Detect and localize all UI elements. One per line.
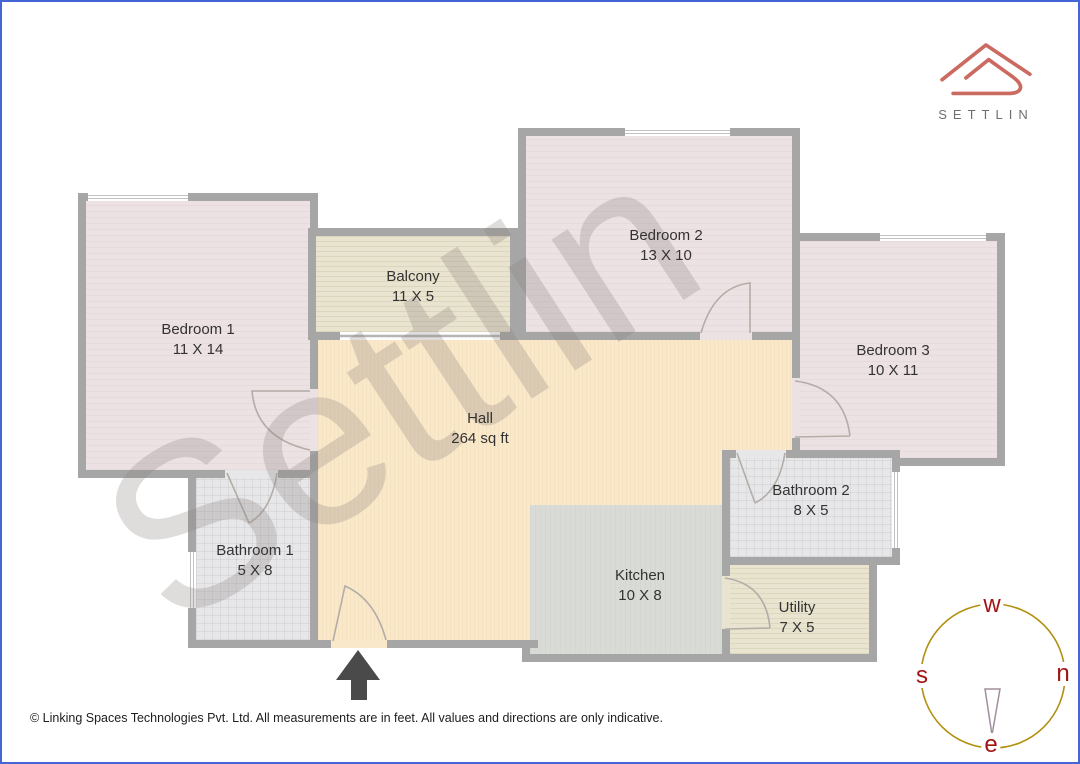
door-arc-bedroom-3 (795, 381, 850, 437)
label-bathroom-1: Bathroom 1 5 X 8 (216, 541, 294, 581)
door-arc-bathroom-1 (227, 473, 277, 523)
room-size: 8 X 5 (772, 501, 850, 521)
label-bedroom-3: Bedroom 3 10 X 11 (856, 341, 929, 381)
room-name: Bathroom 1 (216, 541, 294, 561)
door-arc-main-entrance (333, 586, 386, 641)
floor-plan-page: { "brand": { "name": "SETTLIN" }, "water… (0, 0, 1080, 764)
label-balcony: Balcony 11 X 5 (386, 267, 439, 307)
room-size: 13 X 10 (629, 246, 702, 266)
label-hall: Hall 264 sq ft (451, 409, 509, 449)
room-size: 264 sq ft (451, 429, 509, 449)
room-size: 11 X 14 (161, 340, 234, 360)
door-arc-bedroom-2 (701, 283, 750, 333)
door-arc-bedroom-1 (252, 391, 310, 450)
room-name: Bedroom 3 (856, 341, 929, 361)
room-name: Bedroom 2 (629, 226, 702, 246)
room-name: Hall (451, 409, 509, 429)
room-size: 10 X 8 (615, 586, 665, 606)
label-utility: Utility 7 X 5 (779, 598, 816, 638)
room-name: Balcony (386, 267, 439, 287)
room-name: Bedroom 1 (161, 320, 234, 340)
room-name: Kitchen (615, 566, 665, 586)
room-name: Utility (779, 598, 816, 618)
room-size: 5 X 8 (216, 561, 294, 581)
room-size: 10 X 11 (856, 361, 929, 381)
room-name: Bathroom 2 (772, 481, 850, 501)
doors-overlay (0, 0, 1080, 764)
room-size: 7 X 5 (779, 618, 816, 638)
label-bedroom-1: Bedroom 1 11 X 14 (161, 320, 234, 360)
entrance-arrow-icon (336, 650, 380, 700)
room-size: 11 X 5 (386, 287, 439, 307)
label-bathroom-2: Bathroom 2 8 X 5 (772, 481, 850, 521)
label-kitchen: Kitchen 10 X 8 (615, 566, 665, 606)
label-bedroom-2: Bedroom 2 13 X 10 (629, 226, 702, 266)
door-arc-utility (725, 578, 770, 629)
